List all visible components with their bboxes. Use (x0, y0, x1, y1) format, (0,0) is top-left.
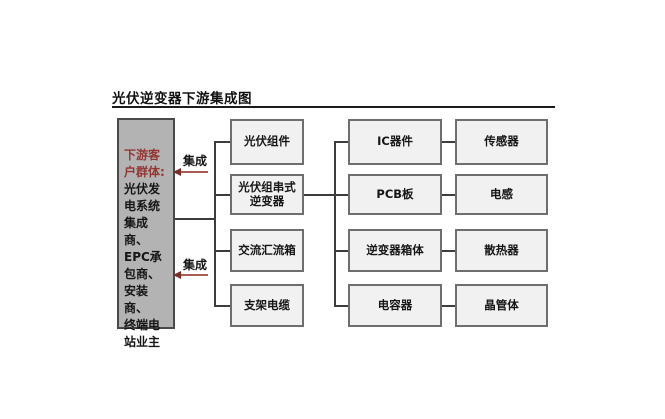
node-string-inverter: 光伏组串式 逆变器 (230, 174, 304, 215)
connector-pair (442, 305, 455, 307)
connector-trunk-col2 (214, 141, 216, 306)
diagram-title: 光伏逆变器下游集成图 (112, 87, 252, 107)
left-arrow-icon (173, 168, 181, 176)
node-heat-sink: 散热器 (455, 229, 548, 272)
node-inverter-enclosure: 逆变器箱体 (348, 229, 442, 272)
diagram-canvas: 光伏逆变器下游集成图 下游客 户群体: 光伏发 电系统 集成商、 EPC承 包商… (0, 0, 665, 419)
connector-branch (334, 305, 348, 307)
connector-customer-trunk (175, 218, 215, 220)
connector-branch (214, 250, 230, 252)
node-sensor: 传感器 (455, 119, 548, 165)
title-underline (112, 106, 555, 108)
node-capacitor: 电容器 (348, 284, 442, 327)
node-pcb-board: PCB板 (348, 174, 442, 215)
downstream-customers-box: 下游客 户群体: 光伏发 电系统 集成商、 EPC承 包商、 安装商、 终端电 … (117, 118, 175, 329)
left-arrow-icon (173, 271, 181, 279)
integration-label-bottom: 集成 (181, 256, 209, 273)
connector-pair (442, 194, 455, 196)
integration-arrow-top-line (180, 171, 208, 173)
node-ac-combiner-box: 交流汇流箱 (230, 229, 304, 272)
connector-pair (442, 250, 455, 252)
node-inductor: 电感 (455, 174, 548, 215)
connector-branch (214, 194, 230, 196)
connector-inverter-components (304, 194, 348, 196)
connector-branch (214, 141, 230, 143)
connector-trunk-col3 (334, 141, 336, 306)
node-bracket-cable: 支架电缆 (230, 284, 304, 327)
integration-arrow-bottom-line (180, 274, 208, 276)
connector-pair (442, 141, 455, 143)
customers-heading: 下游客 户群体: (124, 147, 170, 181)
node-pv-module: 光伏组件 (230, 119, 304, 165)
node-ic-device: IC器件 (348, 119, 442, 165)
customers-list: 光伏发 电系统 集成商、 EPC承 包商、 安装商、 终端电 站业主 (124, 181, 170, 351)
node-transistor: 晶管体 (455, 284, 548, 327)
connector-branch (334, 250, 348, 252)
integration-label-top: 集成 (181, 152, 209, 169)
connector-branch (214, 305, 230, 307)
connector-branch (334, 141, 348, 143)
